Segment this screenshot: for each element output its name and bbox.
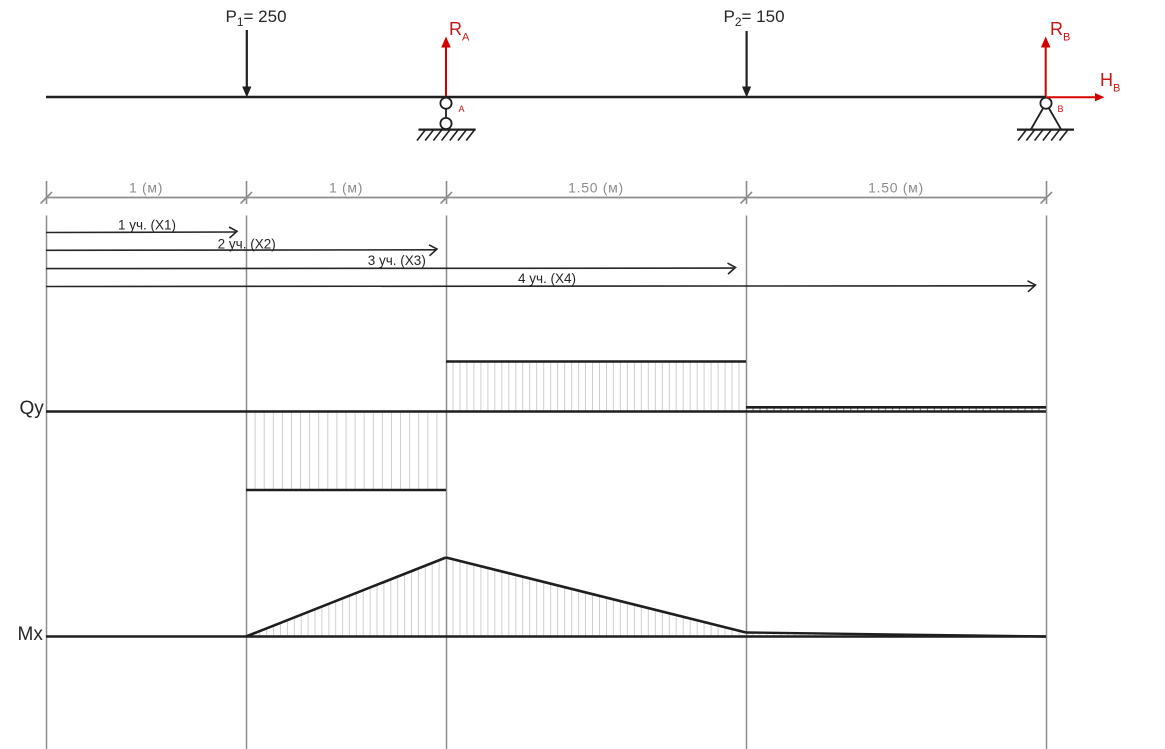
svg-text:1 уч. (X1): 1 уч. (X1) [118,218,176,233]
svg-text:A: A [459,104,465,114]
svg-text:1.50 (м): 1.50 (м) [868,180,924,196]
svg-text:3 уч. (X3): 3 уч. (X3) [368,253,426,268]
svg-text:Mx: Mx [18,624,44,645]
svg-text:B: B [1058,104,1064,114]
svg-text:1 (м): 1 (м) [129,180,163,196]
svg-text:P1= 250: P1= 250 [226,7,287,29]
svg-text:1 (м): 1 (м) [329,180,363,196]
svg-text:4 уч. (X4): 4 уч. (X4) [518,271,576,286]
svg-text:2 уч. (X2): 2 уч. (X2) [218,236,276,251]
svg-text:1.50 (м): 1.50 (м) [568,180,624,196]
svg-text:P2= 150: P2= 150 [724,7,785,29]
svg-text:Qy: Qy [20,398,45,419]
